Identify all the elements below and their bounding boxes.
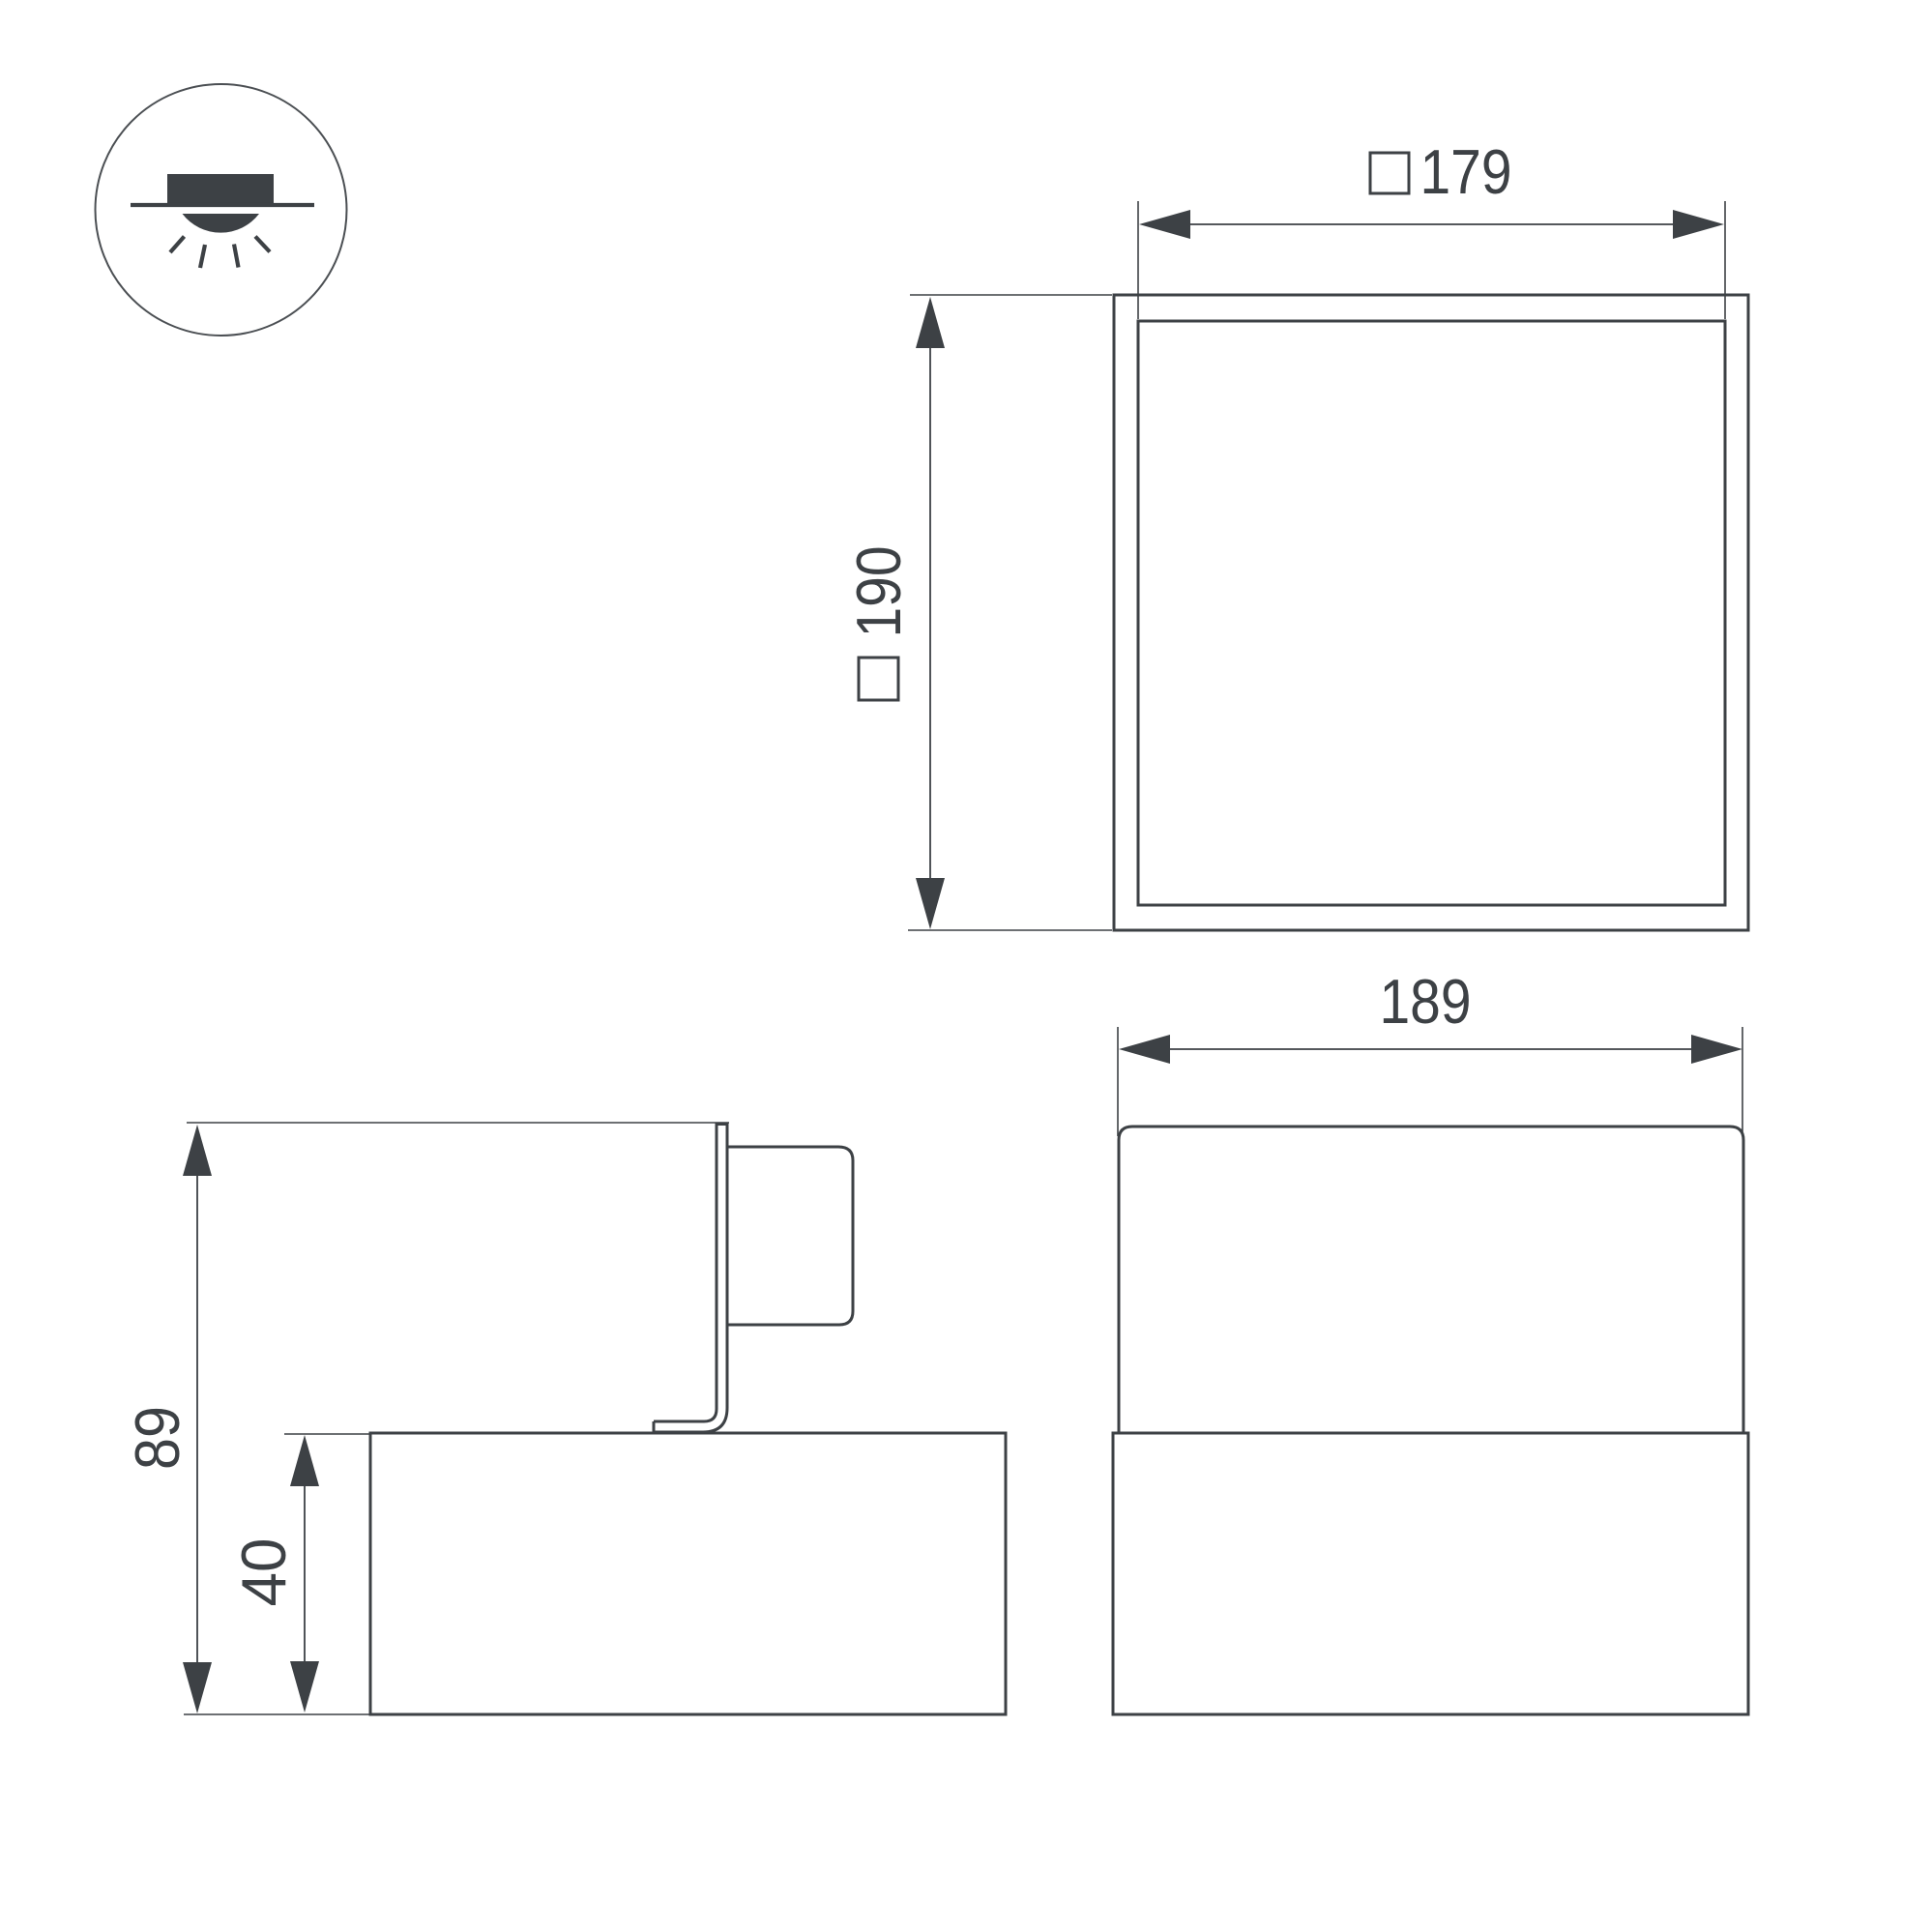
svg-text:40: 40: [228, 1538, 299, 1607]
svg-text:89: 89: [122, 1406, 192, 1470]
svg-text:189: 189: [1380, 966, 1472, 1037]
svg-text:190: 190: [843, 546, 914, 638]
svg-text:179: 179: [1420, 136, 1512, 207]
